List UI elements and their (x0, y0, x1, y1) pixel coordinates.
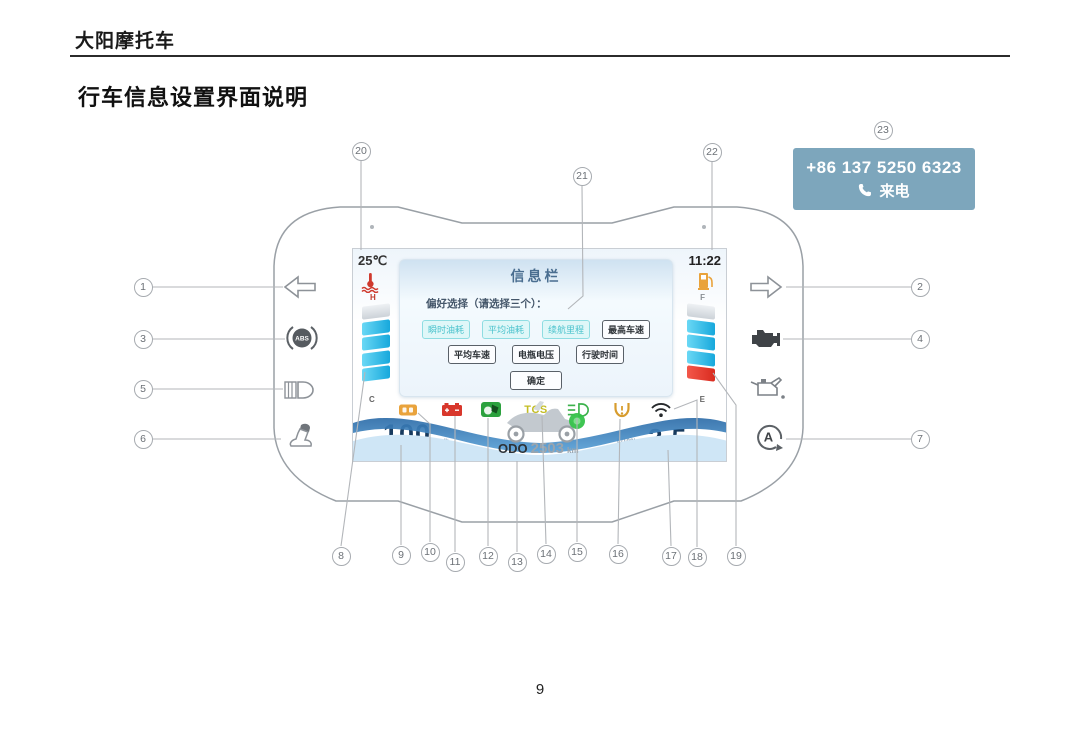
callout-15: 15 (568, 543, 587, 562)
option-button[interactable]: 平均油耗 (482, 320, 530, 339)
callout-22: 22 (703, 143, 722, 162)
fuel-gauge (684, 305, 718, 397)
bezel-screw-right (702, 225, 706, 229)
callout-13: 13 (508, 553, 527, 572)
option-button[interactable]: 电瓶电压 (512, 345, 560, 364)
callout-18: 18 (688, 548, 707, 567)
coolant-gauge (359, 305, 393, 397)
page-title: 行车信息设置界面说明 (78, 80, 308, 112)
phone-number: +86 137 5250 6323 (806, 158, 962, 178)
callout-2: 2 (911, 278, 930, 297)
callout-9: 9 (392, 546, 411, 565)
callout-8: 8 (332, 547, 351, 566)
dialog-title: 信息栏 (400, 260, 672, 286)
callout-11: 11 (446, 553, 465, 572)
confirm-button[interactable]: 确定 (510, 371, 562, 390)
cluster-screen: 25℃ H C 11:22 F E 信息栏 偏好选择（请选择三个）： 瞬时油耗平… (352, 248, 727, 462)
incoming-call-label: 来电 (879, 180, 909, 201)
odo-label: ODO (498, 441, 528, 456)
callout-10: 10 (421, 543, 440, 562)
turn-left-icon (283, 273, 317, 301)
clock: 11:22 (688, 253, 721, 268)
incoming-call-box: +86 137 5250 6323 来电 (793, 148, 975, 210)
gauge-segment-fill (362, 334, 390, 350)
gauge-segment-red (687, 365, 715, 381)
option-row-1: 瞬时油耗平均油耗续航里程最高车速 (400, 320, 672, 339)
svg-text:ABS: ABS (295, 336, 309, 343)
oil-pressure-icon (748, 371, 788, 401)
callout-1: 1 (134, 278, 153, 297)
gauge-segment-fill (362, 365, 390, 381)
gauge-segment-fill (362, 350, 390, 366)
manual-page: 大阳摩托车 行车信息设置界面说明 +86 137 5250 6323 来电 (0, 0, 1080, 744)
info-bar-dialog: 信息栏 偏好选择（请选择三个）： 瞬时油耗平均油耗续航里程最高车速 平均车速电瓶… (399, 259, 673, 397)
option-button[interactable]: 行驶时间 (576, 345, 624, 364)
motorcycle-graphic (499, 397, 595, 443)
svg-text:A: A (764, 430, 774, 445)
bezel-screw-left (370, 225, 374, 229)
headlight-icon (283, 375, 317, 405)
check-engine-icon (747, 324, 783, 352)
fuel-pump-icon (697, 271, 713, 291)
callout-12: 12 (479, 547, 498, 566)
turn-right-icon (749, 273, 783, 301)
page-number: 9 (0, 681, 1080, 698)
ambient-temperature: 25℃ (358, 253, 387, 269)
abs-icon: ABS (285, 322, 319, 354)
callout-6: 6 (134, 430, 153, 449)
option-button[interactable]: 平均车速 (448, 345, 496, 364)
callout-17: 17 (662, 547, 681, 566)
fuel-full-label: F (700, 293, 705, 302)
callout-3: 3 (134, 330, 153, 349)
option-row-2: 平均车速电瓶电压行驶时间 (400, 345, 672, 364)
callout-20: 20 (352, 142, 371, 161)
header-divider (70, 55, 1010, 57)
callout-23: 23 (874, 121, 893, 140)
coolant-hot-label: H (370, 293, 376, 302)
auto-start-stop-icon: A (752, 420, 786, 454)
odo-unit: km (567, 446, 579, 455)
odo-value: 2503 (531, 440, 564, 457)
gauge-segment-empty (362, 303, 390, 319)
callout-4: 4 (911, 330, 930, 349)
option-button[interactable]: 续航里程 (542, 320, 590, 339)
gauge-segment-fill (687, 319, 715, 335)
gauge-segment-fill (687, 350, 715, 366)
callout-19: 19 (727, 547, 746, 566)
option-button[interactable]: 瞬时油耗 (422, 320, 470, 339)
phone-icon (858, 183, 872, 197)
callout-14: 14 (537, 545, 556, 564)
side-stand-icon (281, 421, 319, 453)
option-button[interactable]: 最高车速 (602, 320, 650, 339)
dialog-prompt: 偏好选择（请选择三个）： (426, 296, 672, 311)
gauge-segment-fill (362, 319, 390, 335)
callout-5: 5 (134, 380, 153, 399)
gauge-segment-fill (687, 334, 715, 350)
callout-21: 21 (573, 167, 592, 186)
callout-16: 16 (609, 545, 628, 564)
coolant-temp-icon (361, 271, 379, 293)
gauge-segment-empty (687, 303, 715, 319)
callout-7: 7 (911, 430, 930, 449)
odometer: ODO 2503 km (498, 440, 579, 457)
brand-title: 大阳摩托车 (75, 26, 175, 53)
